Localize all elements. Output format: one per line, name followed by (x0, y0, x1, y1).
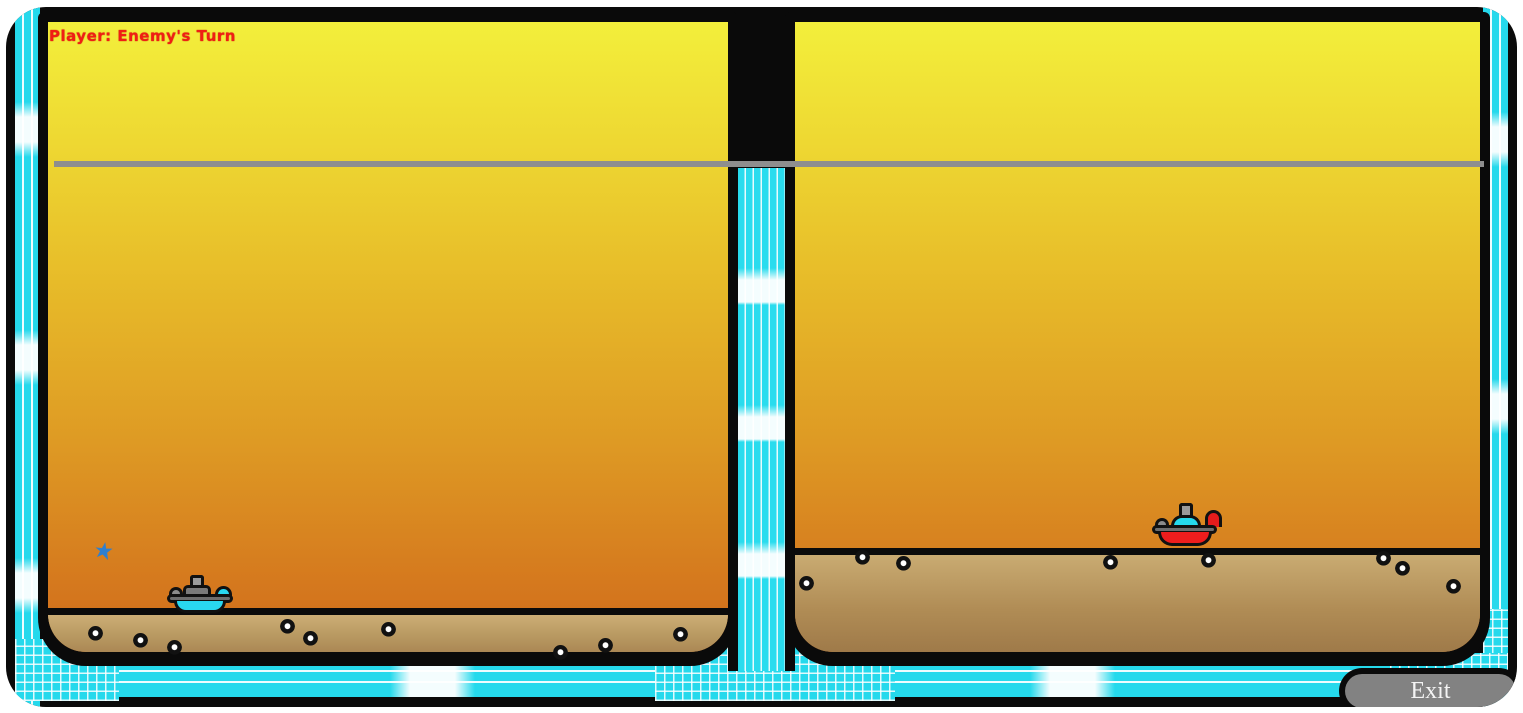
border-stripe-left (15, 7, 40, 707)
enemy-tank-hull (1158, 532, 1212, 546)
turn-indicator: Player: Enemy's Turn (49, 27, 236, 45)
divider-pillar (728, 158, 795, 671)
game-frame: Player: Enemy's Turn Exit (6, 7, 1517, 707)
player-tank-hull (174, 601, 226, 613)
terrain-right (795, 548, 1480, 652)
exit-button-face: Exit (1345, 674, 1516, 707)
exit-button[interactable]: Exit (1339, 668, 1517, 707)
sky-right (795, 22, 1480, 652)
battlefield-pool-left (38, 12, 738, 666)
horizon-line (54, 161, 1484, 167)
exit-button-label: Exit (1411, 678, 1451, 705)
enemy-tank (1152, 503, 1222, 549)
player-tank (167, 575, 233, 613)
sky-left (48, 22, 728, 652)
battlefield-pool-right (785, 12, 1490, 666)
terrain-left (48, 608, 728, 652)
